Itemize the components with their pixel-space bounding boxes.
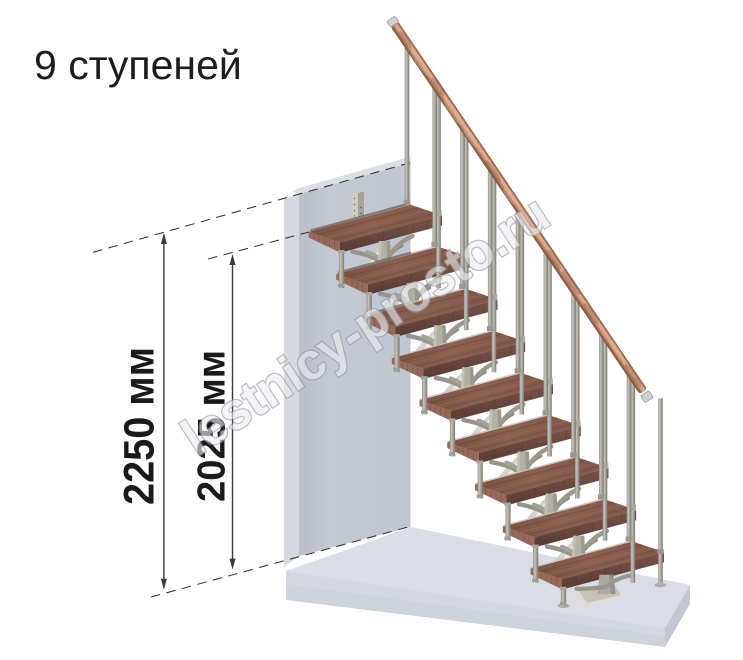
svg-text:9 ступеней: 9 ступеней (34, 42, 242, 88)
svg-text:2250 мм: 2250 мм (116, 347, 164, 505)
